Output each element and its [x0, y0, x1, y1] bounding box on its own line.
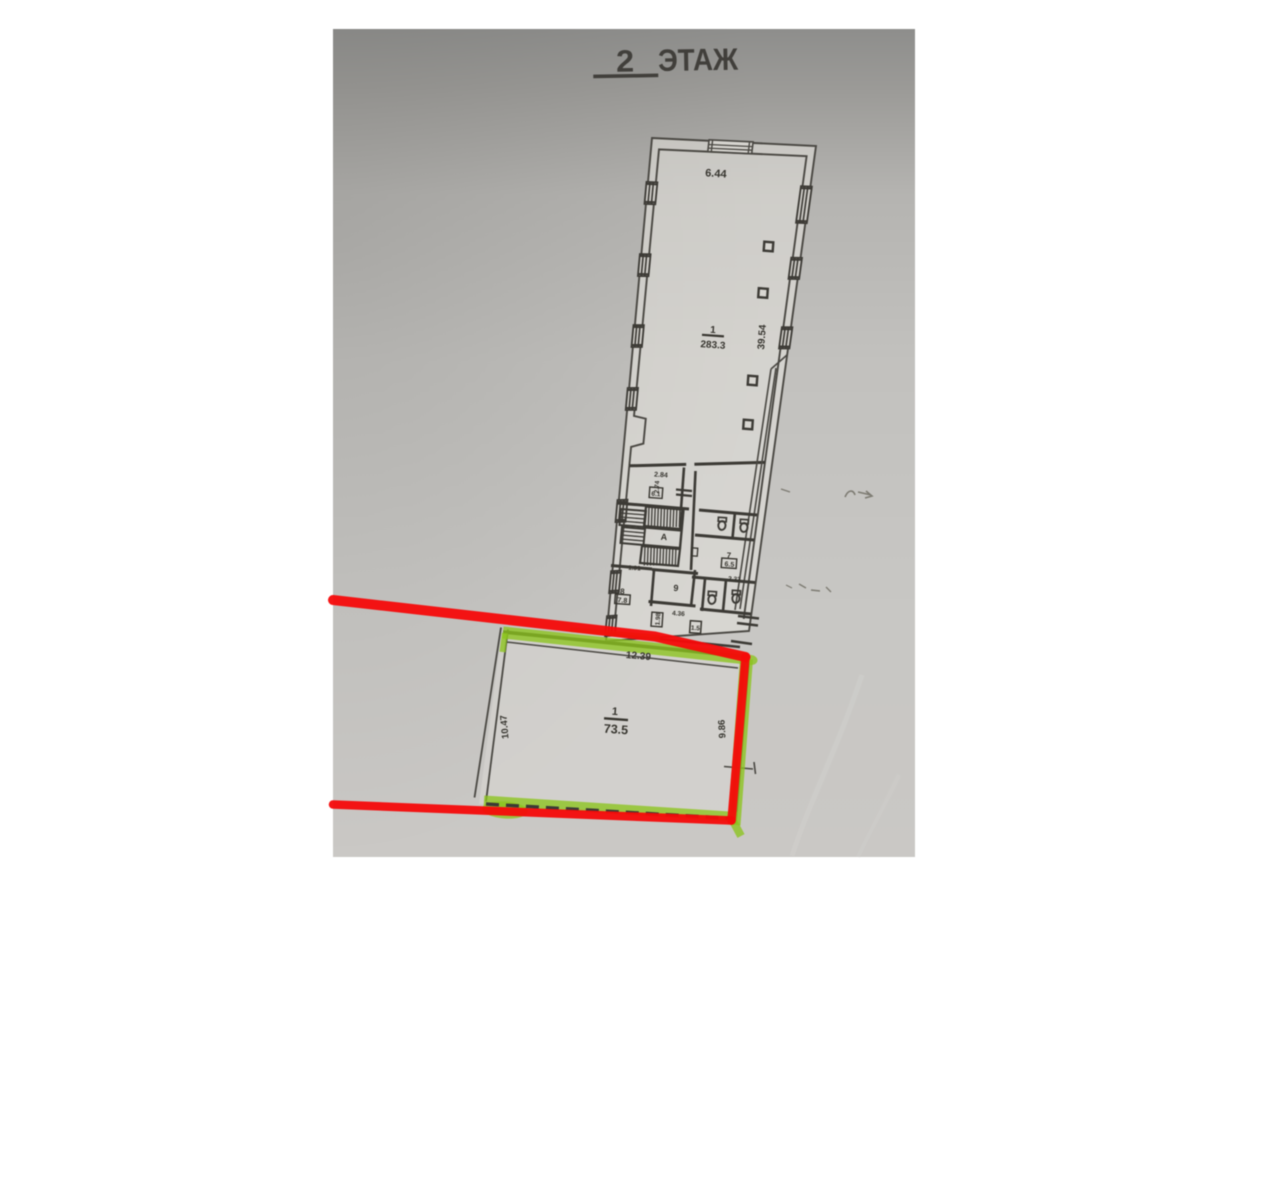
- svg-text:6.5: 6.5: [724, 561, 734, 569]
- svg-text:10.47: 10.47: [498, 715, 511, 740]
- svg-text:1.5: 1.5: [691, 625, 701, 633]
- svg-text:7.8: 7.8: [617, 597, 627, 605]
- svg-text:283.3: 283.3: [700, 339, 726, 352]
- svg-text:1.98: 1.98: [655, 612, 663, 625]
- svg-text:ЭТАЖ: ЭТАЖ: [658, 42, 739, 78]
- svg-text:2.84: 2.84: [654, 472, 668, 480]
- svg-text:2.33: 2.33: [728, 576, 741, 584]
- svg-text:4.36: 4.36: [672, 610, 685, 618]
- svg-text:А: А: [660, 532, 668, 542]
- svg-text:39.54: 39.54: [756, 324, 769, 350]
- svg-text:1: 1: [611, 706, 618, 718]
- svg-text:6.44: 6.44: [705, 167, 728, 181]
- svg-text:6.1: 6.1: [651, 491, 661, 499]
- svg-text:9: 9: [673, 583, 679, 593]
- svg-text:12.39: 12.39: [625, 650, 651, 663]
- svg-text:2: 2: [616, 43, 635, 78]
- svg-text:73.5: 73.5: [603, 722, 628, 738]
- svg-text:9.86: 9.86: [717, 719, 729, 738]
- svg-text:1.91: 1.91: [628, 565, 641, 573]
